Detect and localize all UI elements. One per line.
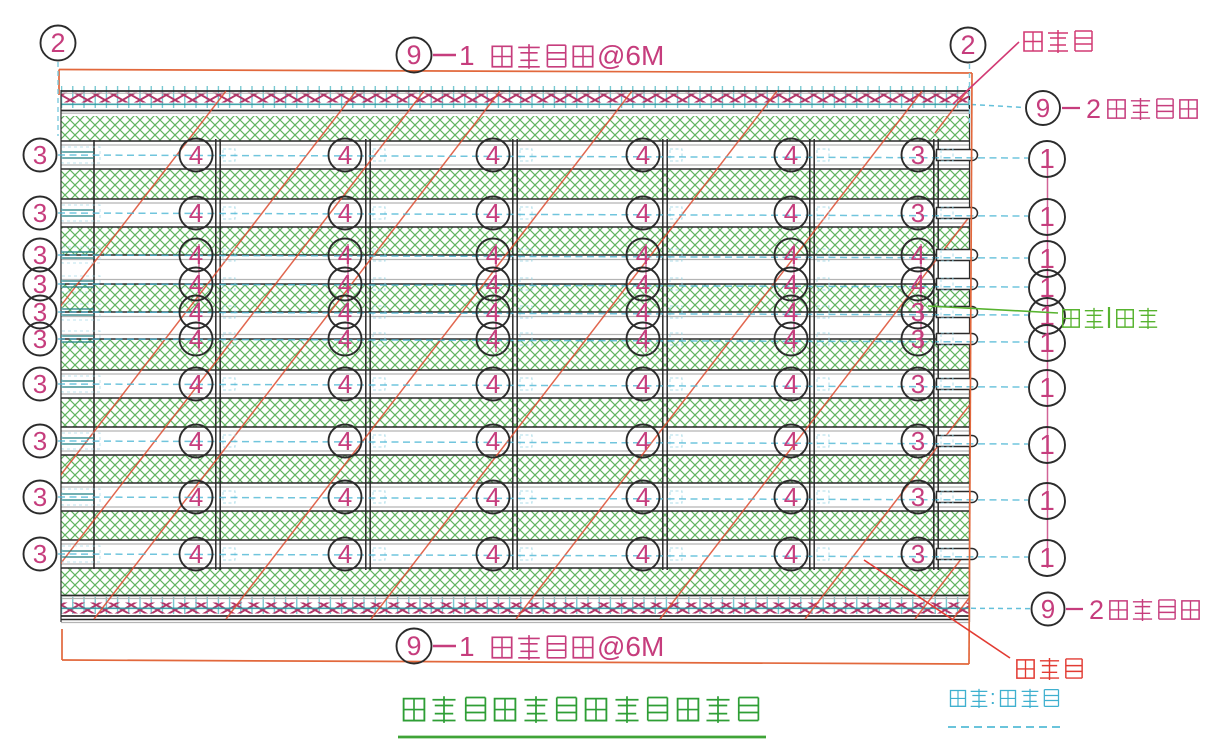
svg-text:4: 4 — [636, 324, 650, 354]
svg-text:@6M: @6M — [597, 40, 664, 71]
svg-text:4: 4 — [784, 269, 798, 299]
svg-text:4: 4 — [636, 198, 650, 228]
svg-text:4: 4 — [784, 140, 798, 170]
svg-text:3: 3 — [33, 324, 47, 354]
svg-text:4: 4 — [636, 482, 650, 512]
svg-text:4: 4 — [486, 426, 500, 456]
svg-text:1: 1 — [459, 631, 475, 662]
svg-text:4: 4 — [189, 369, 203, 399]
svg-text:4: 4 — [636, 539, 650, 569]
svg-text:4: 4 — [338, 369, 352, 399]
svg-text:4: 4 — [338, 482, 352, 512]
svg-text:4: 4 — [784, 198, 798, 228]
svg-text:1: 1 — [1039, 143, 1055, 174]
svg-text:9: 9 — [406, 631, 421, 661]
svg-text:4: 4 — [911, 269, 925, 299]
svg-text:2: 2 — [50, 28, 65, 58]
svg-text:1: 1 — [459, 40, 475, 71]
svg-text:3: 3 — [911, 198, 925, 228]
svg-text:4: 4 — [636, 426, 650, 456]
svg-text:4: 4 — [189, 198, 203, 228]
svg-text:1: 1 — [1039, 372, 1055, 403]
svg-text:@6M: @6M — [597, 631, 664, 662]
svg-text:4: 4 — [189, 324, 203, 354]
svg-text:2: 2 — [1086, 94, 1101, 124]
svg-text:3: 3 — [33, 140, 47, 170]
svg-text:3: 3 — [33, 369, 47, 399]
svg-text:4: 4 — [189, 240, 203, 270]
svg-text:4: 4 — [338, 324, 352, 354]
svg-text:4: 4 — [636, 140, 650, 170]
svg-text:4: 4 — [636, 369, 650, 399]
svg-text:3: 3 — [33, 426, 47, 456]
svg-text:4: 4 — [784, 426, 798, 456]
svg-text:4: 4 — [338, 198, 352, 228]
svg-text:3: 3 — [33, 198, 47, 228]
svg-text:1: 1 — [1039, 429, 1055, 460]
svg-text:4: 4 — [189, 269, 203, 299]
svg-text:4: 4 — [338, 240, 352, 270]
svg-text:3: 3 — [911, 482, 925, 512]
svg-text:3: 3 — [911, 140, 925, 170]
svg-text:1: 1 — [1039, 327, 1055, 358]
svg-text:4: 4 — [486, 539, 500, 569]
svg-text:4: 4 — [189, 482, 203, 512]
svg-text:4: 4 — [189, 539, 203, 569]
svg-text:4: 4 — [338, 140, 352, 170]
svg-text:4: 4 — [189, 426, 203, 456]
svg-text:3: 3 — [33, 240, 47, 270]
svg-text:1: 1 — [1039, 201, 1055, 232]
svg-text:4: 4 — [784, 482, 798, 512]
svg-text:4: 4 — [911, 240, 925, 270]
svg-text:4: 4 — [636, 269, 650, 299]
svg-text:4: 4 — [338, 426, 352, 456]
svg-text:3: 3 — [33, 269, 47, 299]
svg-text:4: 4 — [338, 539, 352, 569]
svg-text:4: 4 — [784, 539, 798, 569]
svg-text:3: 3 — [911, 324, 925, 354]
svg-text:9: 9 — [1041, 594, 1055, 624]
svg-text:2: 2 — [1089, 595, 1104, 625]
svg-text:2: 2 — [960, 30, 975, 60]
svg-text:4: 4 — [784, 240, 798, 270]
svg-text:1: 1 — [1039, 485, 1055, 516]
svg-text:4: 4 — [784, 324, 798, 354]
svg-text:3: 3 — [911, 539, 925, 569]
svg-text:4: 4 — [486, 324, 500, 354]
svg-text:4: 4 — [486, 482, 500, 512]
svg-text:4: 4 — [636, 240, 650, 270]
svg-text:4: 4 — [486, 369, 500, 399]
svg-text:4: 4 — [486, 140, 500, 170]
svg-text:4: 4 — [338, 269, 352, 299]
svg-text:9: 9 — [1036, 93, 1050, 123]
svg-text::: : — [990, 687, 996, 709]
svg-text:3: 3 — [911, 426, 925, 456]
svg-text:9: 9 — [406, 40, 421, 70]
svg-text:3: 3 — [911, 369, 925, 399]
svg-text:4: 4 — [486, 269, 500, 299]
svg-text:4: 4 — [784, 369, 798, 399]
svg-text:4: 4 — [189, 140, 203, 170]
svg-text:3: 3 — [33, 482, 47, 512]
svg-text:3: 3 — [33, 539, 47, 569]
svg-text:4: 4 — [486, 240, 500, 270]
svg-text:4: 4 — [486, 198, 500, 228]
svg-text:1: 1 — [1039, 542, 1055, 573]
